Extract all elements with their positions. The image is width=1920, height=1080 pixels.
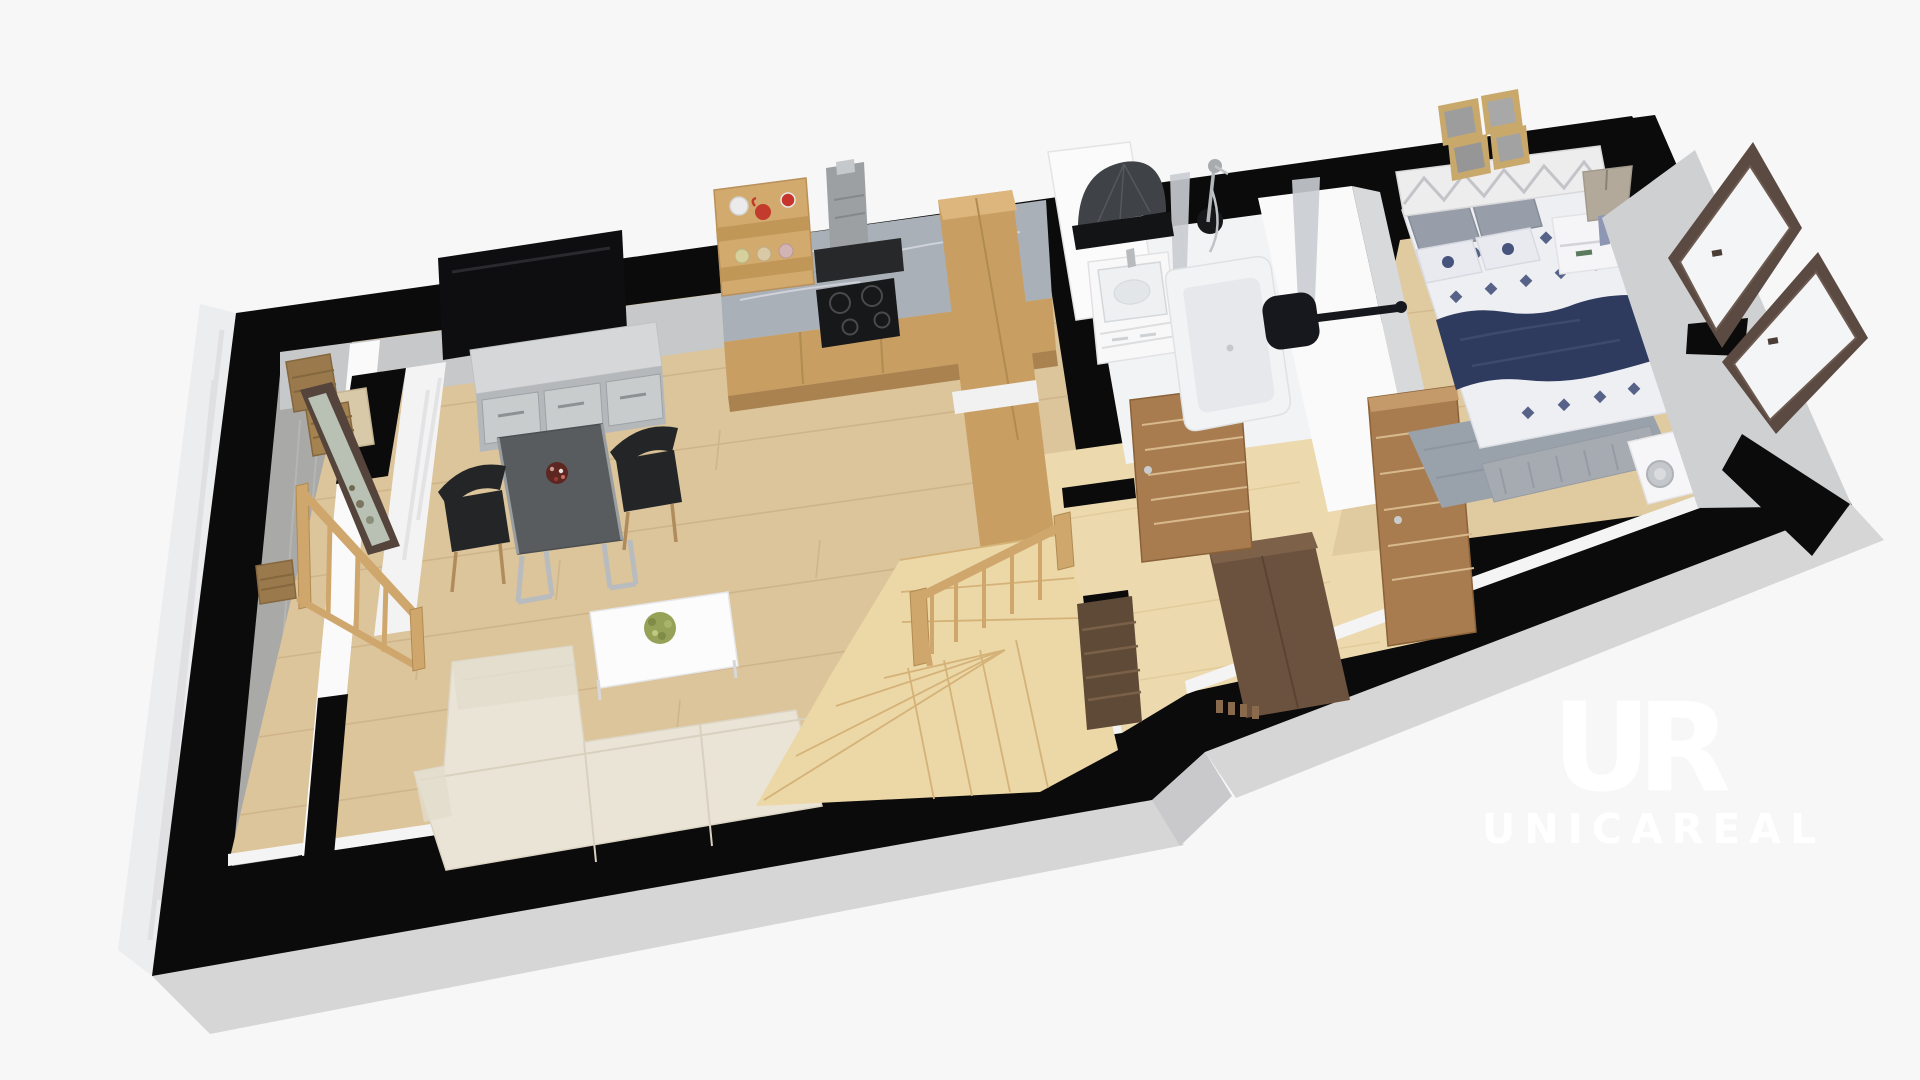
wicker-basket-low <box>256 560 296 604</box>
door-handle <box>1144 466 1152 474</box>
shoe-bench <box>1077 590 1142 730</box>
induction-cooktop <box>816 278 900 348</box>
potted-plant <box>644 612 676 644</box>
floorplan-render-stage: UR UNICAREAL <box>0 0 1920 1080</box>
chrome-stool <box>1647 461 1673 487</box>
open-shelf <box>714 178 814 296</box>
floorplan-3d-scene[interactable]: UR UNICAREAL <box>0 0 1920 1080</box>
vanity-sink <box>1088 248 1178 364</box>
watermark-logo: UR <box>1552 677 1729 819</box>
door-handle <box>1394 516 1402 524</box>
watermark-brand: UNICAREAL <box>1482 805 1825 853</box>
fruit-bowl <box>546 462 568 484</box>
